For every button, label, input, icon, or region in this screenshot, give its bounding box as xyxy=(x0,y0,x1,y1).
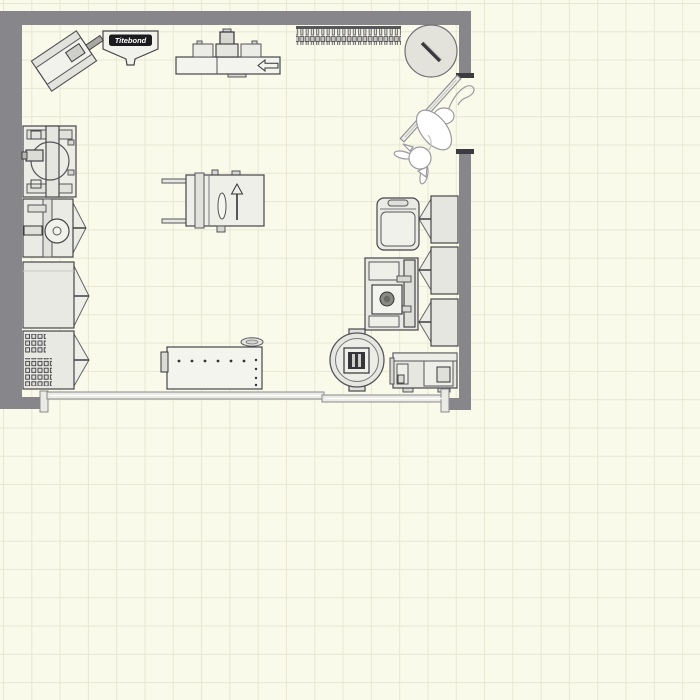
ras-left-block xyxy=(193,44,213,57)
cat-head xyxy=(409,147,431,169)
wall-right-upper[interactable] xyxy=(459,25,471,75)
cabinet1-body xyxy=(23,262,74,328)
glue-bottle-label: Titebond xyxy=(115,36,147,45)
bin-block-small xyxy=(25,334,46,354)
wall-cabinet-1[interactable] xyxy=(419,196,458,243)
bandsaw-wheel xyxy=(45,219,69,243)
wood-stove[interactable] xyxy=(330,329,384,391)
clamp-rack[interactable] xyxy=(296,26,401,45)
bandsaw-dust-port xyxy=(24,226,42,235)
bench-vise xyxy=(161,352,168,372)
stove-grate xyxy=(348,352,365,369)
cat-ear-left xyxy=(403,144,413,151)
radial-arm-saw[interactable] xyxy=(176,29,280,77)
rack-end-right xyxy=(441,389,449,412)
lathe-bed xyxy=(46,126,59,197)
cart-handle xyxy=(388,200,408,206)
lathe-headstock xyxy=(26,150,43,161)
ts-rail-top xyxy=(162,179,187,183)
planer-infeed xyxy=(393,353,457,361)
wall-left-foot xyxy=(22,397,40,409)
ts-rail-bottom xyxy=(162,219,187,223)
planer[interactable] xyxy=(390,353,457,392)
door-jamb-bottom xyxy=(456,149,474,154)
wall-right-lower[interactable] xyxy=(459,154,471,410)
clamp-rail xyxy=(296,26,401,29)
lathe[interactable] xyxy=(22,126,76,197)
round-stool[interactable] xyxy=(405,25,457,77)
benchtop-tool-angled[interactable] xyxy=(32,21,111,91)
glue-bottle[interactable]: Titebond xyxy=(103,31,158,65)
wall-cabinet-2[interactable] xyxy=(419,247,458,294)
dp-column xyxy=(404,260,415,327)
wall-cabinet-3[interactable] xyxy=(419,299,458,346)
floorplan-canvas: Titebond xyxy=(0,0,700,700)
workbench[interactable] xyxy=(161,338,263,389)
bin-block-large xyxy=(25,358,52,386)
storage-cabinet[interactable] xyxy=(23,262,89,328)
wall-top[interactable] xyxy=(0,11,471,25)
drill-press[interactable] xyxy=(365,258,418,330)
band-saw[interactable] xyxy=(23,199,86,257)
ras-right-block xyxy=(241,44,261,57)
wall-left[interactable] xyxy=(0,25,22,409)
ts-blade-slot xyxy=(218,193,226,219)
table-saw[interactable] xyxy=(162,170,264,232)
cart-top xyxy=(381,212,415,246)
lumber-rack[interactable] xyxy=(40,389,449,412)
bench-top xyxy=(167,347,262,389)
rolling-cart[interactable] xyxy=(377,198,419,250)
ts-fence xyxy=(195,173,204,228)
pegboard-cabinet[interactable] xyxy=(23,331,89,389)
ras-column xyxy=(216,44,238,57)
